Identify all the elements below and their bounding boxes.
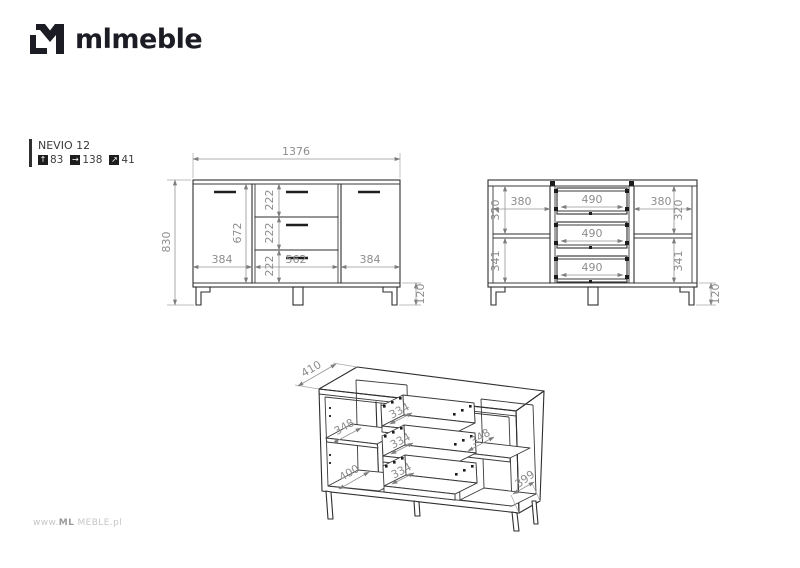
dim-front-drawer1-label: 222 (263, 190, 276, 211)
depth-arrow-icon: ↗ (109, 155, 119, 165)
spec-width-value: 138 (82, 154, 102, 166)
spec-height: ↑ 83 (38, 154, 63, 166)
dim-front-drawer-heights: 222 222 222 (263, 184, 279, 283)
dim-front-leg-label: 120 (414, 284, 427, 305)
dim-front-door-inner-label: 672 (231, 223, 244, 244)
height-arrow-icon: ↑ (38, 155, 48, 165)
front-legs (196, 287, 397, 305)
brand-logo-text: mlmeble (75, 24, 202, 55)
page: 1376 830 672 222 222 22 (0, 0, 800, 568)
dim-open-right-bottom-label: 341 (672, 251, 685, 272)
watermark-prefix: www. (33, 518, 59, 528)
dim-open-right-width-label: 380 (651, 195, 672, 208)
spec-depth: ↗ 41 (109, 154, 134, 166)
width-arrow-icon: → (70, 155, 80, 165)
front-view: 1376 830 672 222 222 22 (160, 145, 427, 305)
open-legs (491, 287, 694, 305)
iso-view: 410 348 400 334 334 334 (295, 358, 544, 531)
dim-iso-top-depth: 410 (298, 358, 336, 386)
dim-front-widths-bottom: 384 562 384 (193, 253, 400, 267)
dim-front-drawer3-label: 222 (263, 256, 276, 277)
dim-front-leg: 120 (414, 283, 427, 305)
dim-front-center-label: 562 (286, 253, 307, 266)
dim-open-leg: 120 (709, 283, 722, 305)
product-label-bar (29, 139, 32, 167)
dim-open-leg-label: 120 (709, 284, 722, 305)
dim-open-left-bottom-label: 341 (489, 251, 502, 272)
brand-logo: mlmeble (28, 22, 202, 56)
open-drawer-boxes: 490 490 490 (554, 188, 629, 283)
dim-open-left-width-label: 380 (511, 195, 532, 208)
dim-iso-top-depth-label: 410 (299, 358, 324, 380)
watermark: www.ML MEBLE.pl (33, 518, 122, 528)
open-view: 490 490 490 320 380 34 (488, 180, 722, 305)
dim-front-drawer2-label: 222 (263, 223, 276, 244)
brand-logo-mark-icon (28, 22, 66, 56)
dim-front-right-door-label: 384 (360, 253, 381, 266)
dim-front-left-door-label: 384 (212, 253, 233, 266)
dim-front-height: 830 (160, 180, 175, 305)
watermark-brand: ML (59, 518, 75, 528)
spec-depth-value: 41 (121, 154, 134, 166)
spec-width: → 138 (70, 154, 102, 166)
product-name: NEVIO 12 (38, 139, 135, 152)
dim-open-left-top-label: 320 (489, 200, 502, 221)
dim-open-drawer3-label: 490 (582, 261, 603, 274)
dim-front-height-label: 830 (160, 232, 173, 253)
dim-open-drawer2-label: 490 (582, 227, 603, 240)
product-specs: ↑ 83 → 138 ↗ 41 (38, 154, 135, 166)
dim-front-width-label: 1376 (282, 145, 310, 158)
spec-height-value: 83 (50, 154, 63, 166)
watermark-middle: MEBLE (74, 518, 110, 528)
product-label: NEVIO 12 ↑ 83 → 138 ↗ 41 (29, 139, 135, 167)
front-cabinet-body (193, 180, 400, 287)
dim-open-right-top-label: 320 (672, 200, 685, 221)
dim-front-width: 1376 (193, 145, 400, 159)
open-drawer-width-dims: 490 490 490 (561, 193, 623, 275)
technical-drawing: 1376 830 672 222 222 22 (0, 0, 800, 568)
watermark-suffix: .pl (110, 518, 122, 528)
dim-open-drawer1-label: 490 (582, 193, 603, 206)
dim-front-door-inner: 672 (231, 184, 246, 283)
